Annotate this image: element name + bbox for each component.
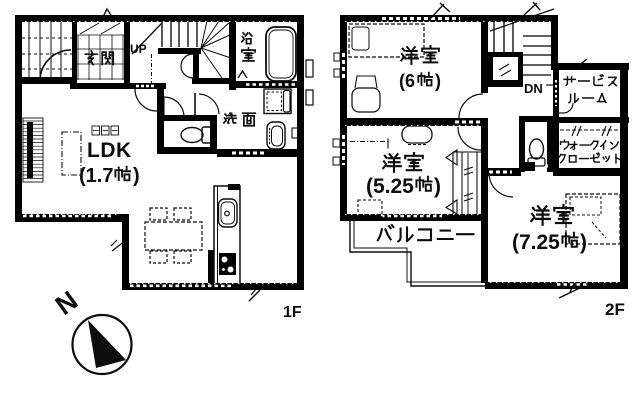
svg-text:): ) (133, 165, 140, 187)
svg-text:(1.7: (1.7 (79, 165, 113, 187)
svg-text:): ) (434, 175, 441, 198)
svg-text:(6: (6 (399, 71, 415, 91)
svg-text:): ) (580, 231, 587, 254)
svg-text:DN: DN (524, 81, 543, 96)
svg-text:LDK: LDK (87, 139, 132, 162)
svg-text:2F: 2F (605, 300, 625, 319)
svg-text:1F: 1F (283, 304, 302, 321)
svg-text:N: N (50, 285, 83, 321)
svg-text:(7.25: (7.25 (512, 231, 560, 254)
svg-text:): ) (435, 71, 441, 91)
svg-text:UP: UP (130, 42, 147, 56)
svg-text:(5.25: (5.25 (366, 175, 414, 198)
